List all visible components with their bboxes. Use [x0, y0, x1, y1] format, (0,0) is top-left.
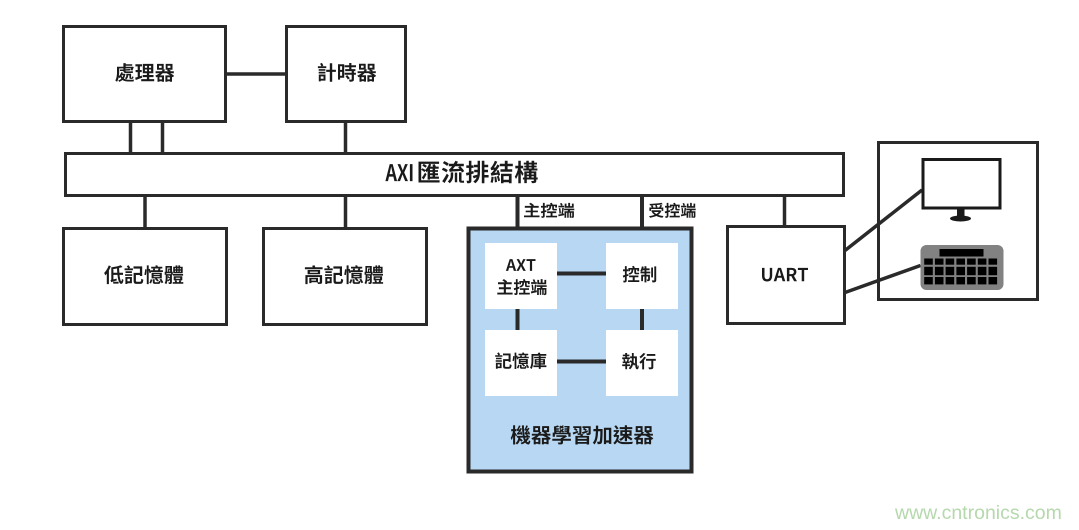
svg-text:www.cntronics.com: www.cntronics.com — [894, 502, 1062, 524]
